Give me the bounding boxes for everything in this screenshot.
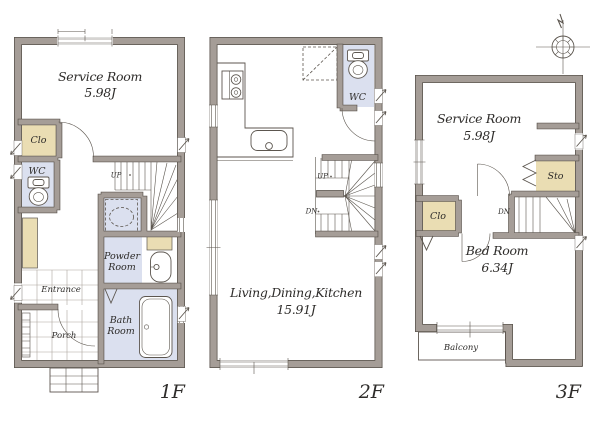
vent-icon (375, 111, 387, 126)
vent-icon (11, 165, 23, 180)
entry-arrow-icon (11, 286, 23, 301)
label-3f-bed-room: Bed Room (465, 243, 528, 258)
label-1f-powder-2: Room (107, 262, 136, 273)
entrance-tiles (22, 270, 101, 360)
toilet-icon-1f (28, 177, 49, 205)
label-1f-wc: WC (28, 166, 46, 177)
label-1f-service-room: Service Room (58, 69, 142, 84)
vent-icon (178, 138, 190, 153)
floor-plan-2f: WC UP DN Living,Dining,Kitchen 15.91J 2F (207, 41, 387, 403)
stairs-2f (316, 157, 376, 234)
floorplan-svg: Service Room 5.98J Clo WC UP Powder Room… (0, 0, 600, 421)
stair-rail (317, 191, 344, 198)
label-2f-dn: DN (305, 208, 319, 216)
toilet-icon-2f (348, 50, 369, 78)
folding-door-mark (523, 160, 536, 186)
label-3f-dn: DN (497, 208, 511, 216)
stove-icon (222, 71, 243, 99)
vent-icon (575, 134, 587, 149)
label-3f-balcony: Balcony (443, 343, 478, 353)
bathtub-icon (140, 297, 173, 358)
compass-icon (536, 14, 590, 74)
floorplan-canvas: Service Room 5.98J Clo WC UP Powder Room… (0, 0, 600, 421)
label-3f-service-room: Service Room (437, 111, 521, 126)
vanity-cabinet (147, 236, 172, 250)
stairs-3f (510, 197, 576, 234)
label-2f-wc: WC (349, 92, 367, 103)
label-1f-clo: Clo (30, 135, 46, 146)
vent-icon (375, 245, 387, 260)
shoe-cabinet (23, 218, 38, 268)
label-1f-porch: Porch (51, 331, 77, 341)
label-1f-bath-2: Room (106, 326, 135, 337)
refrigerator-space (303, 47, 337, 80)
north-arrow (558, 14, 563, 28)
vent-icon (375, 262, 387, 277)
label-3f-sto: Sto (547, 171, 563, 182)
dn-marker-dot (318, 211, 320, 213)
vent-icon (178, 307, 190, 322)
floor-plan-3f: Service Room 5.98J Sto Clo DN Bed Room 6… (414, 79, 587, 403)
up-marker-dot (129, 174, 131, 176)
label-1f-powder-1: Powder (103, 251, 142, 262)
label-2f-up: UP (317, 173, 328, 181)
outside-steps (50, 368, 98, 392)
label-1f-bath-1: Bath (109, 315, 133, 326)
label-2f-ldk: Living,Dining,Kitchen (229, 285, 362, 300)
label-1f-up: UP (111, 172, 122, 180)
vent-icon (575, 236, 587, 251)
floor-label-2f: 2F (358, 381, 385, 403)
label-2f-ldk-area: 15.91J (277, 302, 317, 317)
label-3f-clo: Clo (430, 211, 446, 222)
floor-plan-1f: Service Room 5.98J Clo WC UP Powder Room… (11, 29, 190, 403)
label-3f-service-area: 5.98J (463, 128, 496, 143)
floor-label-1f: 1F (160, 381, 186, 403)
vent-icon (375, 89, 387, 104)
washbasin-icon (151, 252, 172, 282)
label-3f-bed-area: 6.34J (481, 260, 514, 275)
up-marker-dot (330, 176, 332, 178)
stair-hub-dot (344, 195, 346, 197)
floor-label-3f: 3F (556, 381, 582, 403)
doors-2f (342, 108, 375, 141)
label-1f-service-area: 5.98J (84, 85, 117, 100)
label-1f-entrance: Entrance (40, 285, 81, 295)
vent-icon (11, 141, 23, 156)
kitchen-sink-icon (251, 131, 287, 151)
